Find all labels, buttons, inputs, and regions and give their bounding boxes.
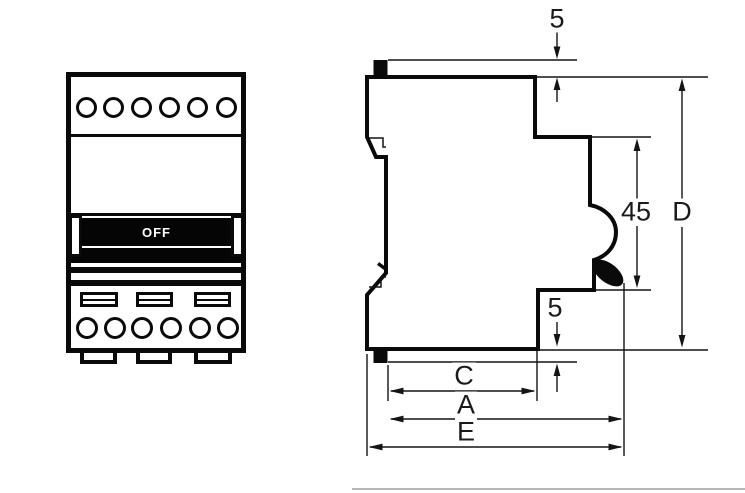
dim-label-top-gap: 5	[547, 6, 566, 33]
dim-label-handle-height: 45	[619, 199, 653, 226]
mcb-dimension-drawing: OFF	[0, 0, 745, 493]
body-profile-outline	[367, 77, 616, 349]
rail-flange	[374, 60, 388, 77]
dim-label-overall-height: D	[670, 199, 694, 226]
side-view	[0, 0, 745, 493]
dim-label-bottom-gap: 5	[545, 295, 564, 322]
dim-label-depth-a: A	[455, 392, 477, 419]
rail-flange	[374, 349, 388, 363]
dim-label-depth-e: E	[455, 419, 477, 446]
dim-label-depth-c: C	[452, 363, 476, 390]
page-edge-artifact	[352, 488, 745, 490]
